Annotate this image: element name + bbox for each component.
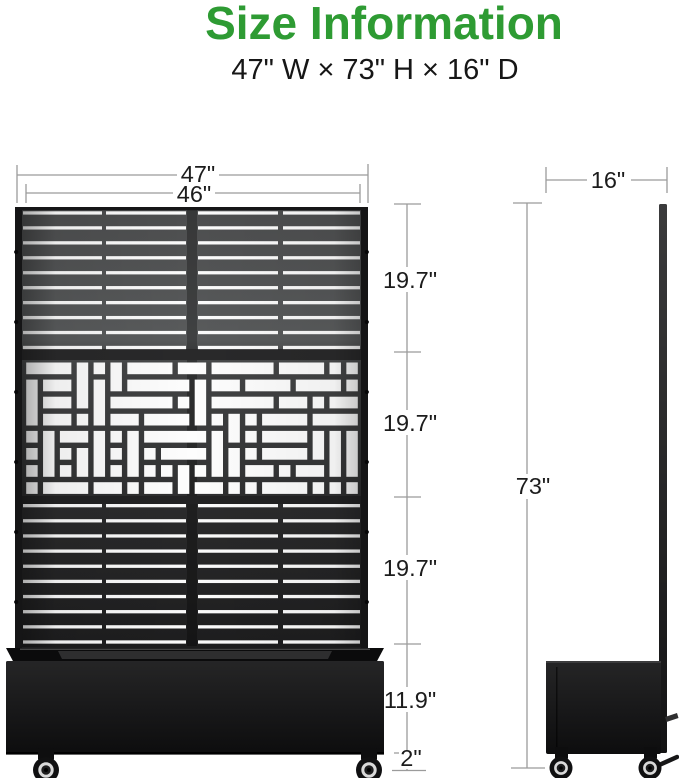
planter-box-side <box>546 661 661 754</box>
bottom-section-height-label: 19.7" <box>383 555 437 581</box>
depth-label: 16" <box>591 167 625 193</box>
side-view <box>546 204 679 778</box>
planter-box-front <box>6 648 384 755</box>
front-view <box>6 207 384 778</box>
size-diagram: 47" 46" 19.7" 19.7" 19.7" 11.9" 2" 73" 1… <box>0 0 679 778</box>
middle-section-height-label: 19.7" <box>383 410 437 436</box>
planter-height-label: 11.9" <box>384 687 436 713</box>
size-information-page: Size Information 47" W × 73" H × 16" D <box>0 0 679 778</box>
wheel-clearance-label: 2" <box>400 745 421 771</box>
latch-handle <box>665 713 679 722</box>
top-section-height-label: 19.7" <box>383 267 437 293</box>
overall-height-label: 73" <box>516 473 550 499</box>
front-panel-width-label: 46" <box>177 181 211 207</box>
privacy-screen-panel <box>14 207 369 648</box>
